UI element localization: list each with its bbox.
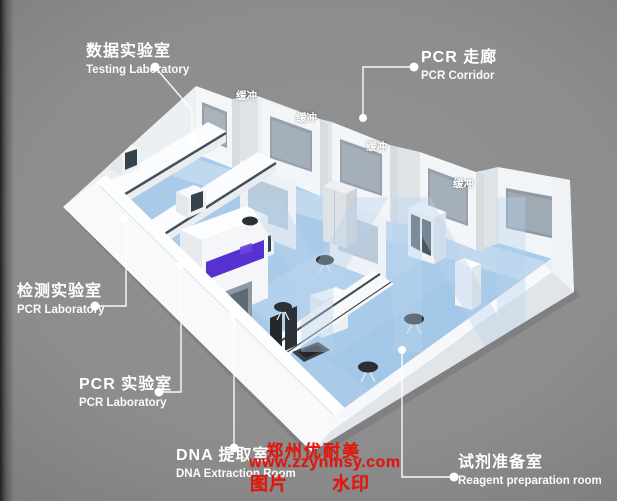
watermark-text-right: 水印 [332,470,370,496]
callout-en-label: PCR Corridor [421,70,497,82]
watermark-letters: YN [242,148,527,400]
connector-dot [229,310,237,318]
callout-zh-label: PCR 走廊 [421,50,497,67]
callout-pcr-corridor: PCR 走廊 PCR Corridor [421,50,497,82]
callout-inspection-lab: 检测实验室 PCR Laboratory [17,284,105,316]
connector-dot [398,346,406,354]
callout-zh-label: PCR 实验室 [79,377,172,394]
connector-dot [188,133,196,141]
callout-reagent-room: 试剂准备室 Reagent preparation room [458,455,602,487]
callout-en-label: Reagent preparation room [458,475,602,487]
screenshot-root: YN 缓冲 缓冲 缓冲 缓冲 数据实验室 Te [0,0,617,501]
buffer-room-label: 缓冲 [365,140,387,153]
callout-zh-label: 试剂准备室 [458,455,602,472]
callout-pcr-lab: PCR 实验室 PCR Laboratory [79,377,172,409]
watermark-text-left: 图片 [250,470,288,496]
connector-dot [176,261,184,269]
connector-dot [120,215,128,223]
callout-zh-label: 数据实验室 [86,44,189,61]
callout-testing-lab: 数据实验室 Testing Laboratory [86,44,189,76]
connector-dot [359,114,367,122]
buffer-room-label: 缓冲 [452,177,474,190]
connector-dot [410,63,419,72]
buffer-room-label: 缓冲 [295,111,317,124]
callout-zh-label: 检测实验室 [17,284,105,301]
callout-en-label: PCR Laboratory [79,397,172,409]
buffer-room-label: 缓冲 [235,89,257,102]
callout-en-label: Testing Laboratory [86,64,189,76]
callout-en-label: PCR Laboratory [17,304,105,316]
